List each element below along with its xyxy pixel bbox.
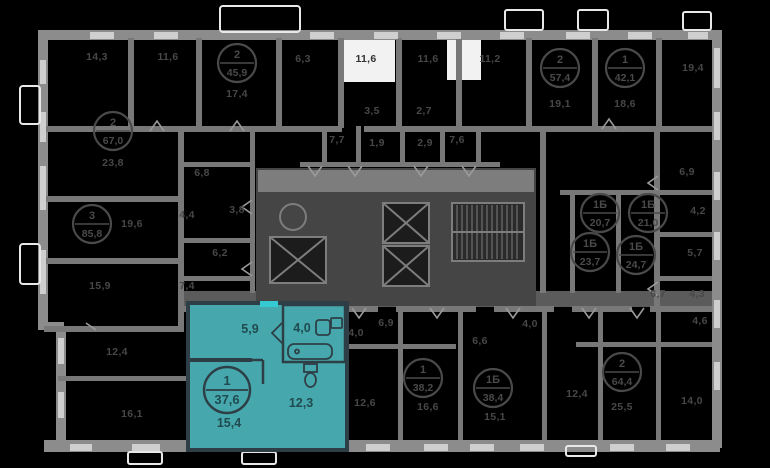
unit-rooms-count: 1Б	[629, 241, 643, 253]
room-area-label: 5,7	[687, 247, 703, 259]
unit-area: 42,1	[615, 72, 636, 84]
room-area-label: 23,8	[102, 157, 124, 169]
unit-rooms-count: 2	[234, 49, 240, 61]
unit-rooms-count: 1Б	[486, 374, 500, 386]
room-area-label: 15,1	[484, 411, 506, 423]
room-area-label: 6,2	[212, 247, 228, 259]
unit-rooms-count: 3	[89, 210, 95, 222]
unit-rooms-count: 1Б	[641, 199, 655, 211]
unit-badge[interactable]: 1Б38,4	[474, 369, 512, 407]
room-area-label: 11,2	[479, 53, 500, 65]
unit-area: 85,8	[82, 228, 103, 240]
unit-rooms-count: 1Б	[583, 238, 597, 250]
room-area-label: 11,6	[157, 51, 178, 63]
unit-badge[interactable]: 264,4	[603, 353, 641, 391]
unit-area: 20,7	[590, 217, 611, 229]
unit-area: 23,7	[580, 256, 601, 268]
hall-area-label: 5,9	[241, 322, 258, 336]
entrance-mark	[260, 301, 278, 307]
unit-area: 38,4	[483, 392, 504, 404]
room-area-label: 7,6	[449, 134, 465, 146]
unit-rooms-count: 2	[557, 54, 563, 66]
unit-badge[interactable]: 245,9	[218, 44, 256, 82]
room-area-label: 4,3	[689, 288, 705, 300]
unit-rooms-count: 2	[619, 358, 625, 370]
room-area-label: 17,4	[226, 88, 248, 100]
unit-badge[interactable]: 1Б24,7	[617, 236, 655, 274]
selected-apartment[interactable]: 1 37,6 5,9 4,0 15,4 12,3	[188, 301, 347, 450]
living-area-label: 15,4	[217, 416, 241, 430]
room-area-label: 4,4	[179, 209, 195, 221]
room-area-label: 4,0	[522, 318, 538, 330]
room-area-label: 19,4	[682, 62, 704, 74]
unit-badge[interactable]: 385,8	[73, 205, 111, 243]
room-area-label: 2,7	[416, 105, 432, 117]
room-area-label: 6,3	[295, 53, 311, 65]
room-area-label: 6,7	[650, 288, 666, 300]
room-area-label: 25,5	[611, 401, 633, 413]
room-area-label: 3,8	[229, 204, 245, 216]
unit-area: 64,4	[612, 376, 633, 388]
room-area-label: 4,6	[692, 315, 708, 327]
unit-area: 21,0	[638, 217, 659, 229]
room-area-label: 12,6	[354, 397, 376, 409]
unit-rooms-count: 1	[420, 364, 426, 376]
floor-plan: 1 37,6 5,9 4,0 15,4 12,3 14,311,617,46,3…	[0, 0, 770, 468]
room-area-label: 18,6	[614, 98, 636, 110]
room-area-label: 14,3	[86, 51, 108, 63]
unit-area: 57,4	[550, 72, 571, 84]
unit-badge[interactable]: 138,2	[404, 359, 442, 397]
apartment-badge: 1 37,6	[204, 367, 250, 413]
room-area-label: 6,6	[472, 335, 488, 347]
unit-area: 67,0	[103, 135, 124, 147]
unit-badge[interactable]: 1Б21,0	[629, 194, 667, 232]
unit-badge[interactable]: 142,1	[606, 49, 644, 87]
room-area-label: 4,2	[690, 205, 706, 217]
badge-area: 37,6	[214, 392, 239, 407]
room-area-label: 2,9	[417, 137, 433, 149]
room-area-label: 19,6	[121, 218, 143, 230]
room-area-label: 7,4	[179, 280, 195, 292]
bath-area-label: 4,0	[293, 321, 310, 335]
room-area-label: 14,0	[681, 395, 703, 407]
room-area-label: 1,9	[369, 137, 385, 149]
kitchen-area-label: 12,3	[289, 396, 313, 410]
room-area-label: 6,9	[679, 166, 695, 178]
floor-plan-canvas: 1 37,6 5,9 4,0 15,4 12,3 14,311,617,46,3…	[0, 0, 770, 468]
room-area-label: 4,0	[348, 327, 364, 339]
unit-area: 45,9	[227, 67, 248, 79]
staircase-icon	[452, 203, 524, 261]
room-area-label: 12,4	[566, 388, 588, 400]
unit-badge[interactable]: 1Б23,7	[571, 233, 609, 271]
room-area-label: 11,6	[355, 53, 376, 65]
unit-area: 38,2	[413, 382, 434, 394]
unit-badge[interactable]: 257,4	[541, 49, 579, 87]
unit-badge[interactable]: 267,0	[94, 112, 132, 150]
unit-badge[interactable]: 1Б20,7	[581, 194, 619, 232]
room-area-label: 6,8	[194, 167, 210, 179]
unit-rooms-count: 1	[622, 54, 628, 66]
unit-rooms-count: 2	[110, 117, 116, 129]
room-area-label: 12,4	[106, 346, 128, 358]
room-area-label: 11,6	[417, 53, 438, 65]
unit-rooms-count: 1Б	[593, 199, 607, 211]
room-area-label: 7,7	[329, 134, 345, 146]
room-area-label: 15,9	[89, 280, 111, 292]
unit-area: 24,7	[626, 259, 647, 271]
room-area-label: 16,6	[417, 401, 439, 413]
room-area-label: 19,1	[549, 98, 571, 110]
room-area-label: 6,9	[378, 317, 394, 329]
badge-rooms: 1	[223, 373, 230, 388]
room-area-label: 16,1	[121, 408, 143, 420]
room-area-label: 3,5	[364, 105, 380, 117]
